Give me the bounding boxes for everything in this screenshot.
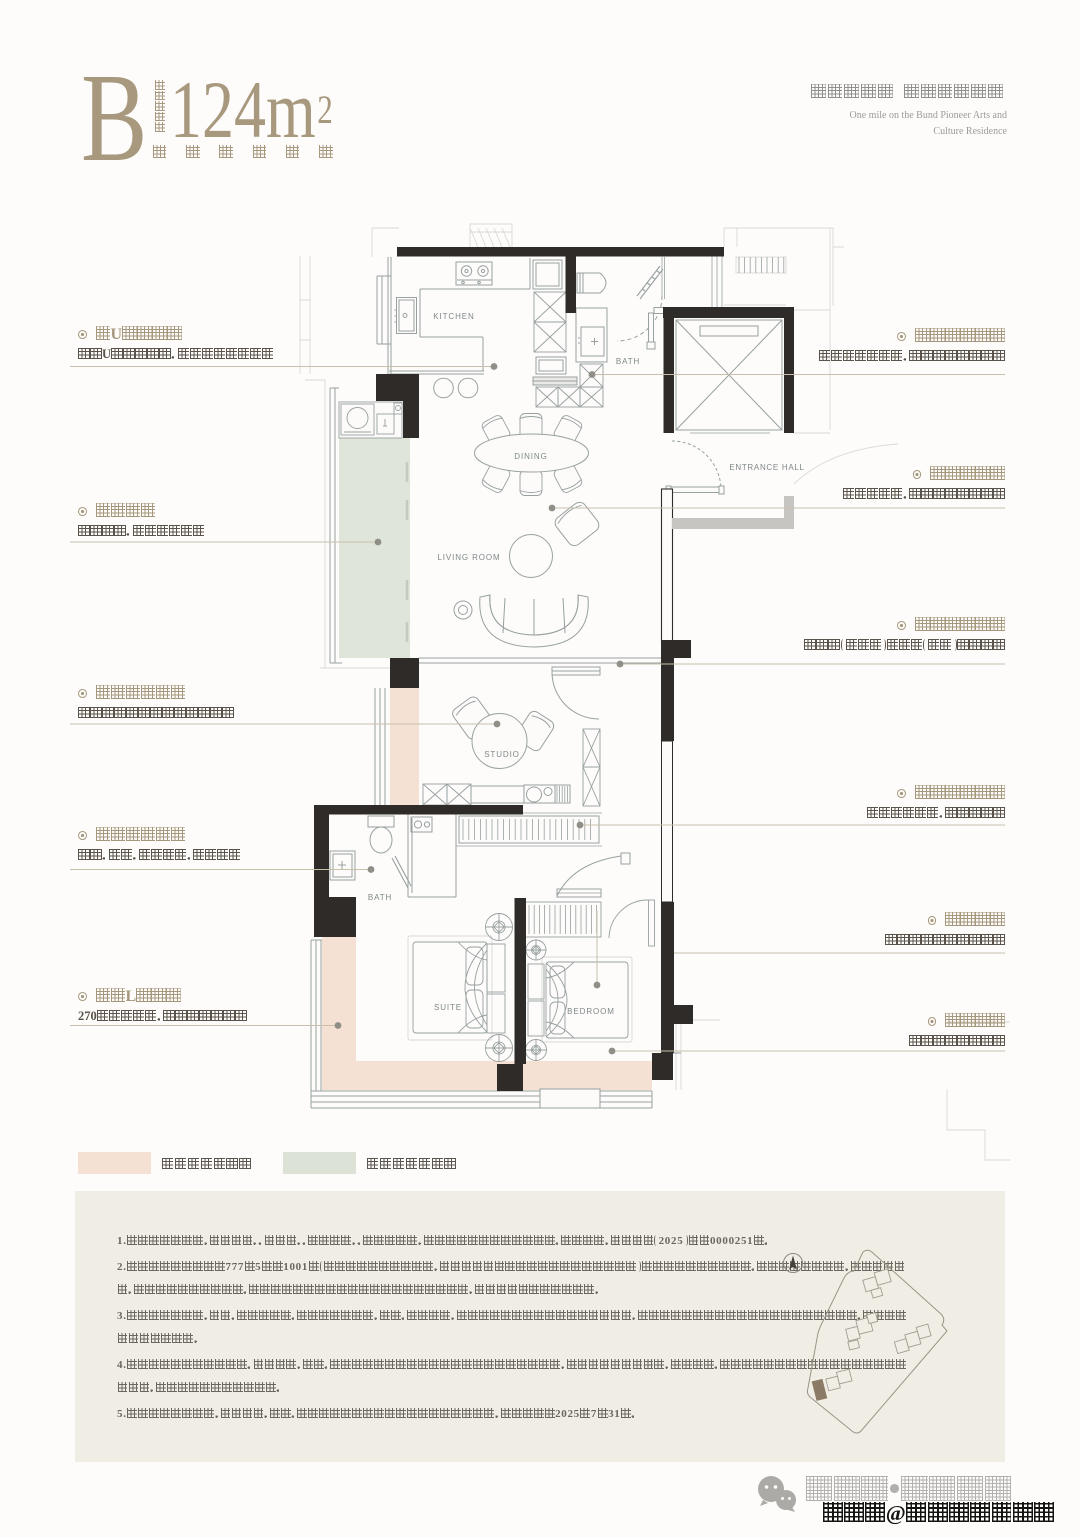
svg-text:DINING: DINING — [514, 452, 547, 461]
svg-text:KITCHEN: KITCHEN — [433, 312, 474, 321]
svg-text:BATH: BATH — [368, 893, 392, 902]
svg-text:LIVING ROOM: LIVING ROOM — [437, 553, 500, 562]
svg-text:BATH: BATH — [616, 357, 640, 366]
svg-text:STUDIO: STUDIO — [484, 750, 520, 759]
svg-text:BEDROOM: BEDROOM — [567, 1007, 615, 1016]
svg-text:SUITE: SUITE — [434, 1003, 462, 1012]
